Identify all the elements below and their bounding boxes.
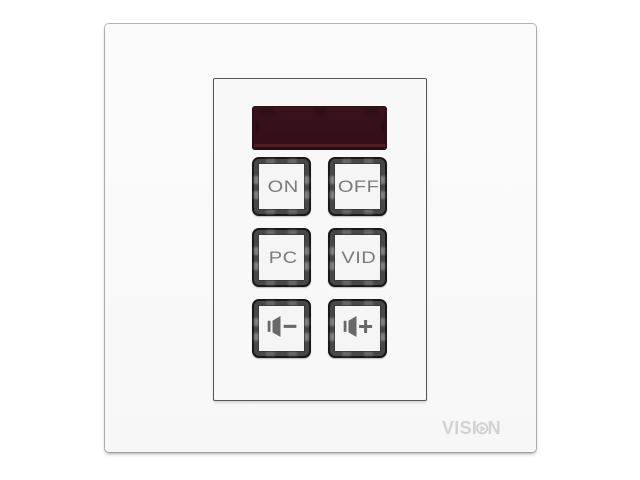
svg-text:VISI: VISI [442,419,477,437]
svg-text:N: N [488,419,501,437]
